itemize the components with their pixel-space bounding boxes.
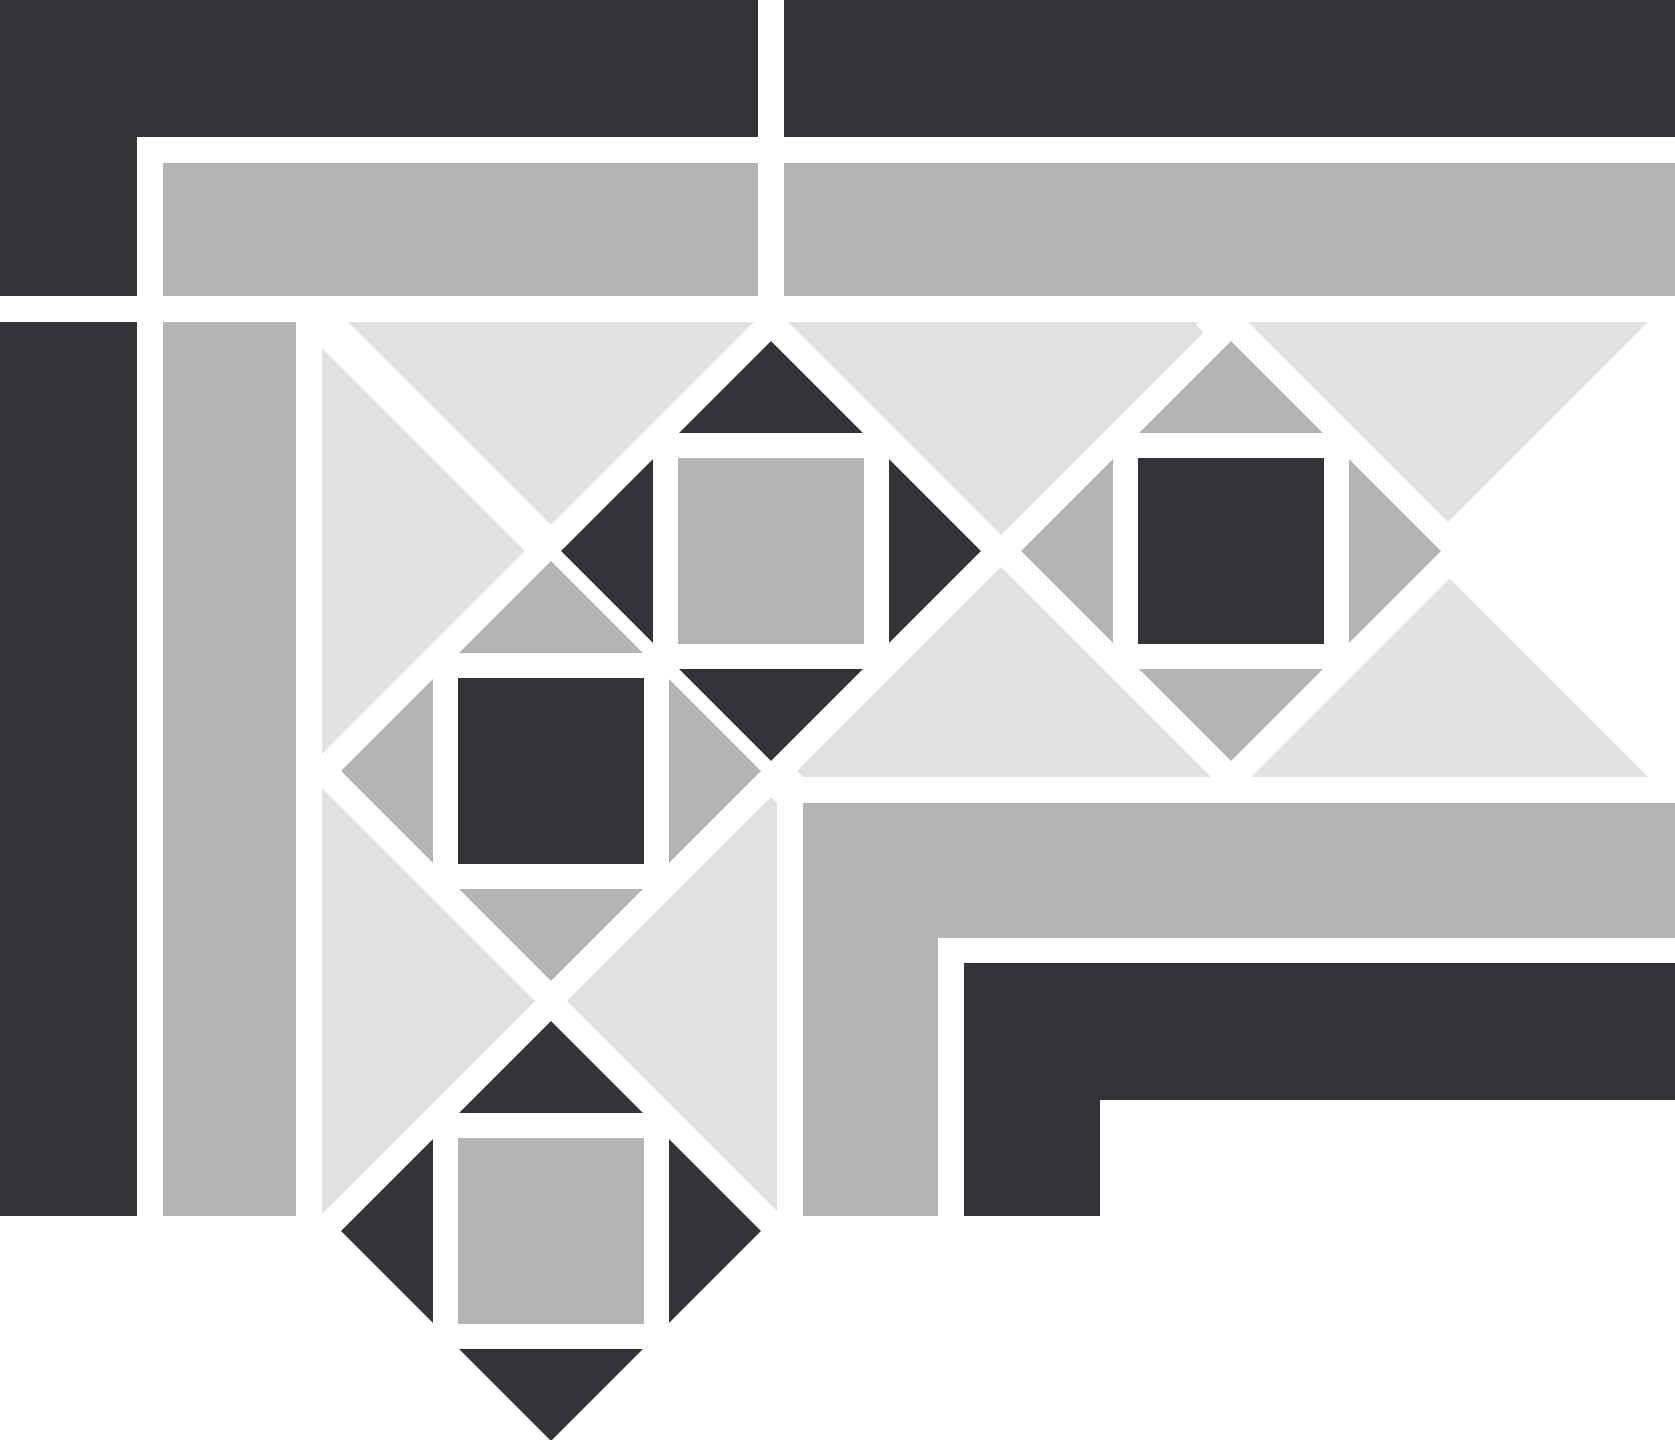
outer-dark-top-band-right	[784, 0, 1675, 137]
outer-gray-band-right	[784, 163, 1675, 296]
tile-pattern-svg	[0, 0, 1675, 1440]
tile-border-corner-graphic	[0, 0, 1675, 1440]
motif-1-center-square	[678, 458, 864, 644]
motif-2-center-square	[1138, 458, 1324, 644]
outer-dark-corner-block	[0, 0, 137, 296]
outer-dark-left-column	[0, 322, 137, 1216]
outer-gray-band-left	[163, 163, 758, 296]
inner-dark-l-band	[964, 963, 1675, 1216]
motif-4-center-square	[458, 1138, 644, 1324]
outer-gray-left-column	[163, 322, 296, 1216]
motif-3-center-square	[458, 678, 644, 864]
